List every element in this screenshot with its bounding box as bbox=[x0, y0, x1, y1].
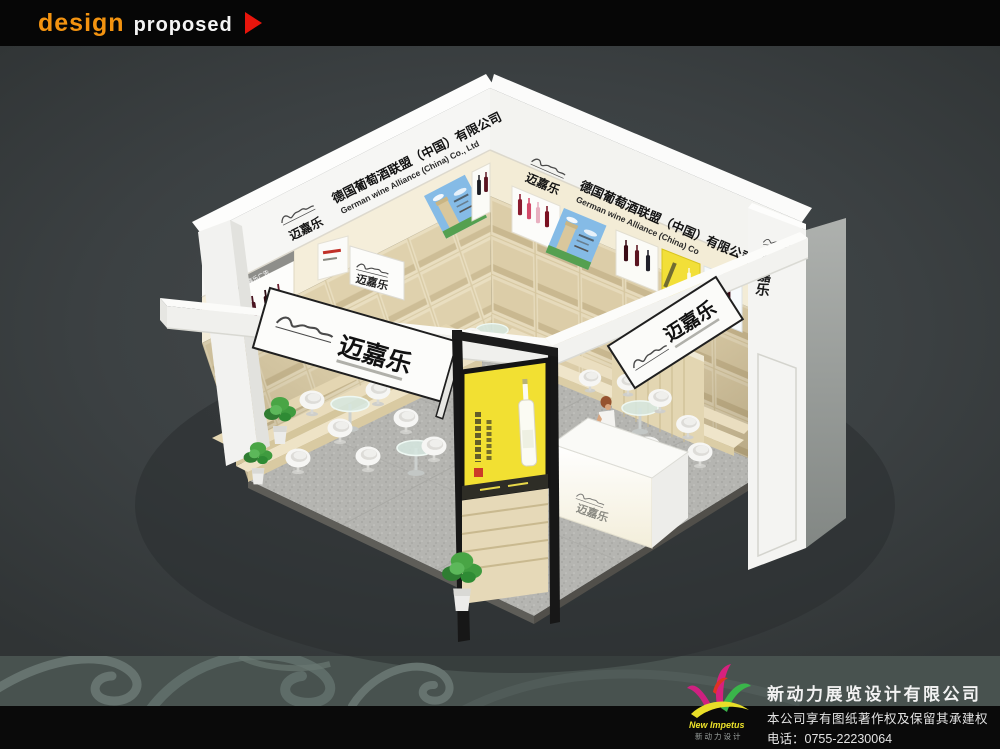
header-bar: design proposed bbox=[0, 0, 1000, 46]
logo-en-text: New Impetus bbox=[689, 720, 745, 730]
header-title: design proposed bbox=[38, 9, 262, 38]
footer-company-name: 新动力展览设计有限公司 bbox=[767, 680, 988, 705]
phone-label: 电话： bbox=[767, 732, 805, 746]
play-arrow-icon bbox=[245, 12, 262, 34]
new-impetus-logo-icon: New Impetus 新动力设计 bbox=[683, 656, 759, 748]
small-award-poster bbox=[318, 236, 348, 280]
bottles-poster-left bbox=[472, 163, 490, 221]
footer-phone-1: 电话：0755-22230064 bbox=[767, 728, 988, 747]
phone-number-1: 0755-22230064 bbox=[805, 732, 893, 746]
yellow-lightbox bbox=[462, 360, 548, 500]
footer-rights: 本公司享有图纸著作权及保留其承建权 bbox=[767, 708, 988, 727]
proposed-word: proposed bbox=[134, 14, 233, 37]
exhibition-booth: 迈嘉乐广告 迈嘉乐 bbox=[135, 74, 895, 673]
footer-text-block: 新动力展览设计有限公司 本公司享有图纸著作权及保留其承建权 电话：0755-22… bbox=[767, 680, 988, 749]
footer: New Impetus 新动力设计 新动力展览设计有限公司 本公司享有图纸著作权… bbox=[655, 656, 1000, 749]
right-wall-side-face bbox=[806, 218, 846, 548]
booth-render: 迈嘉乐广告 迈嘉乐 bbox=[0, 0, 1000, 749]
logo-cn-text: 新动力设计 bbox=[695, 731, 743, 741]
design-word: design bbox=[38, 9, 125, 38]
company-logo: New Impetus 新动力设计 bbox=[683, 656, 759, 749]
design-proposal-page: design proposed bbox=[0, 0, 1000, 749]
